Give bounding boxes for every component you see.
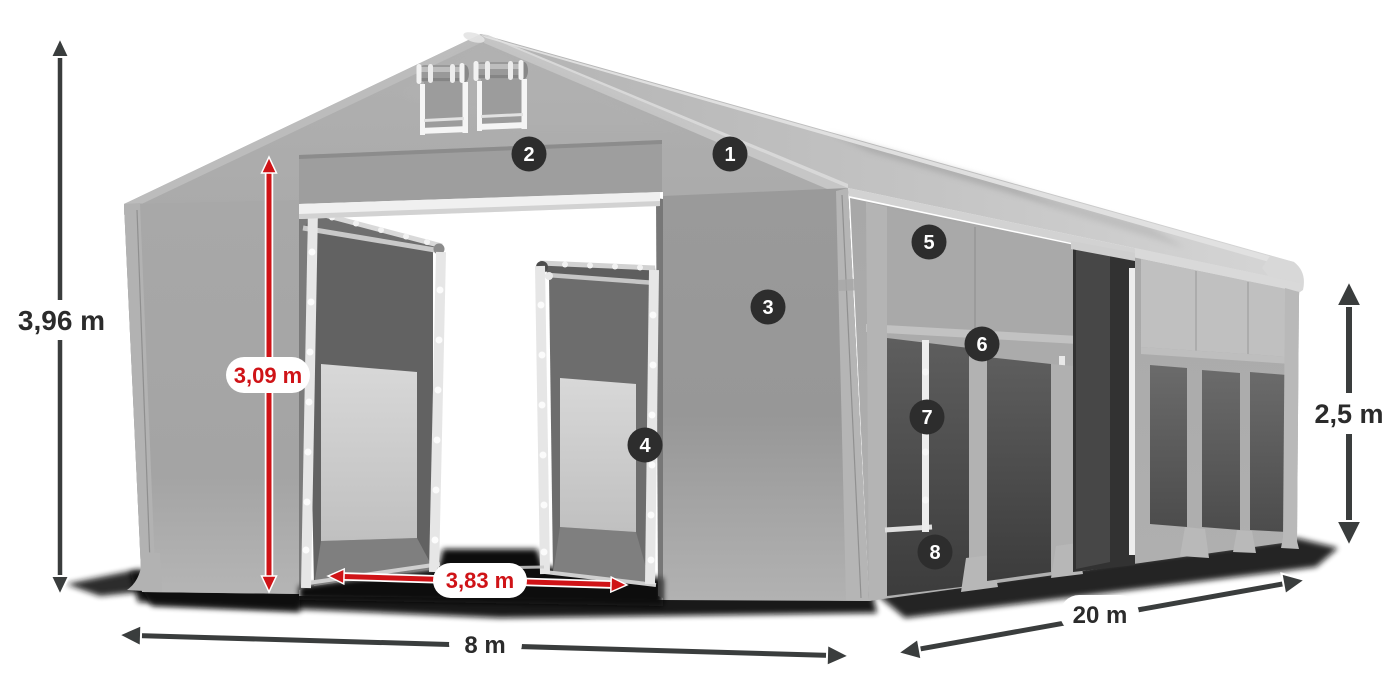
svg-text:8 m: 8 m: [464, 632, 505, 659]
svg-text:7: 7: [921, 407, 932, 429]
svg-text:8: 8: [929, 542, 940, 564]
svg-text:3,83 m: 3,83 m: [446, 568, 515, 593]
svg-text:3: 3: [762, 297, 773, 319]
svg-text:20 m: 20 m: [1073, 602, 1128, 629]
svg-text:2,5 m: 2,5 m: [1314, 399, 1383, 429]
svg-text:1: 1: [724, 144, 735, 166]
svg-text:2: 2: [523, 144, 534, 166]
svg-text:3,96 m: 3,96 m: [18, 305, 105, 336]
svg-text:6: 6: [976, 334, 987, 356]
svg-text:4: 4: [639, 435, 651, 457]
svg-text:3,09 m: 3,09 m: [234, 363, 303, 388]
svg-text:5: 5: [923, 232, 934, 254]
